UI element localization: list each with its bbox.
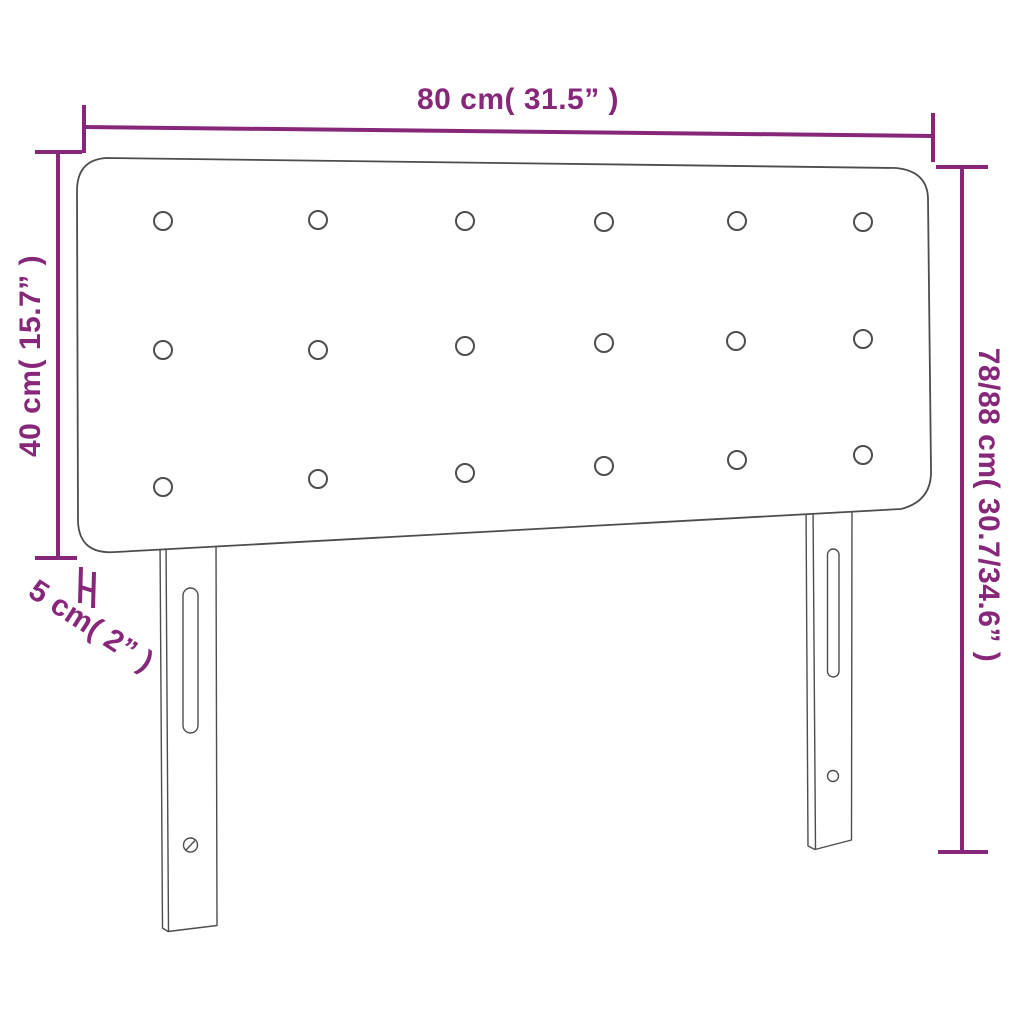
right-leg bbox=[806, 503, 852, 850]
headboard-dimension-diagram: 80 cm( 31.5” ) 40 cm( 15.7” ) 78/88 cm( … bbox=[0, 0, 1024, 1024]
total-height-dimension: 78/88 cm( 30.7/34.6” ) bbox=[936, 167, 1005, 852]
total-height-dimension-label: 78/88 cm( 30.7/34.6” ) bbox=[972, 348, 1005, 663]
thickness-dimension: 5 cm( 2” ) bbox=[23, 567, 160, 678]
panel-height-dimension: 40 cm( 15.7” ) bbox=[14, 152, 82, 558]
panel-height-dimension-label: 40 cm( 15.7” ) bbox=[14, 255, 47, 457]
diagram-canvas: 80 cm( 31.5” ) 40 cm( 15.7” ) 78/88 cm( … bbox=[0, 0, 1024, 1024]
thickness-dimension-left-tick bbox=[80, 567, 81, 603]
width-dimension-line bbox=[84, 127, 933, 136]
width-dimension-label: 80 cm( 31.5” ) bbox=[417, 83, 619, 116]
width-dimension: 80 cm( 31.5” ) bbox=[84, 83, 933, 162]
headboard-panel-outline bbox=[77, 158, 931, 552]
thickness-dimension-line bbox=[81, 587, 94, 591]
left-leg bbox=[160, 540, 217, 932]
